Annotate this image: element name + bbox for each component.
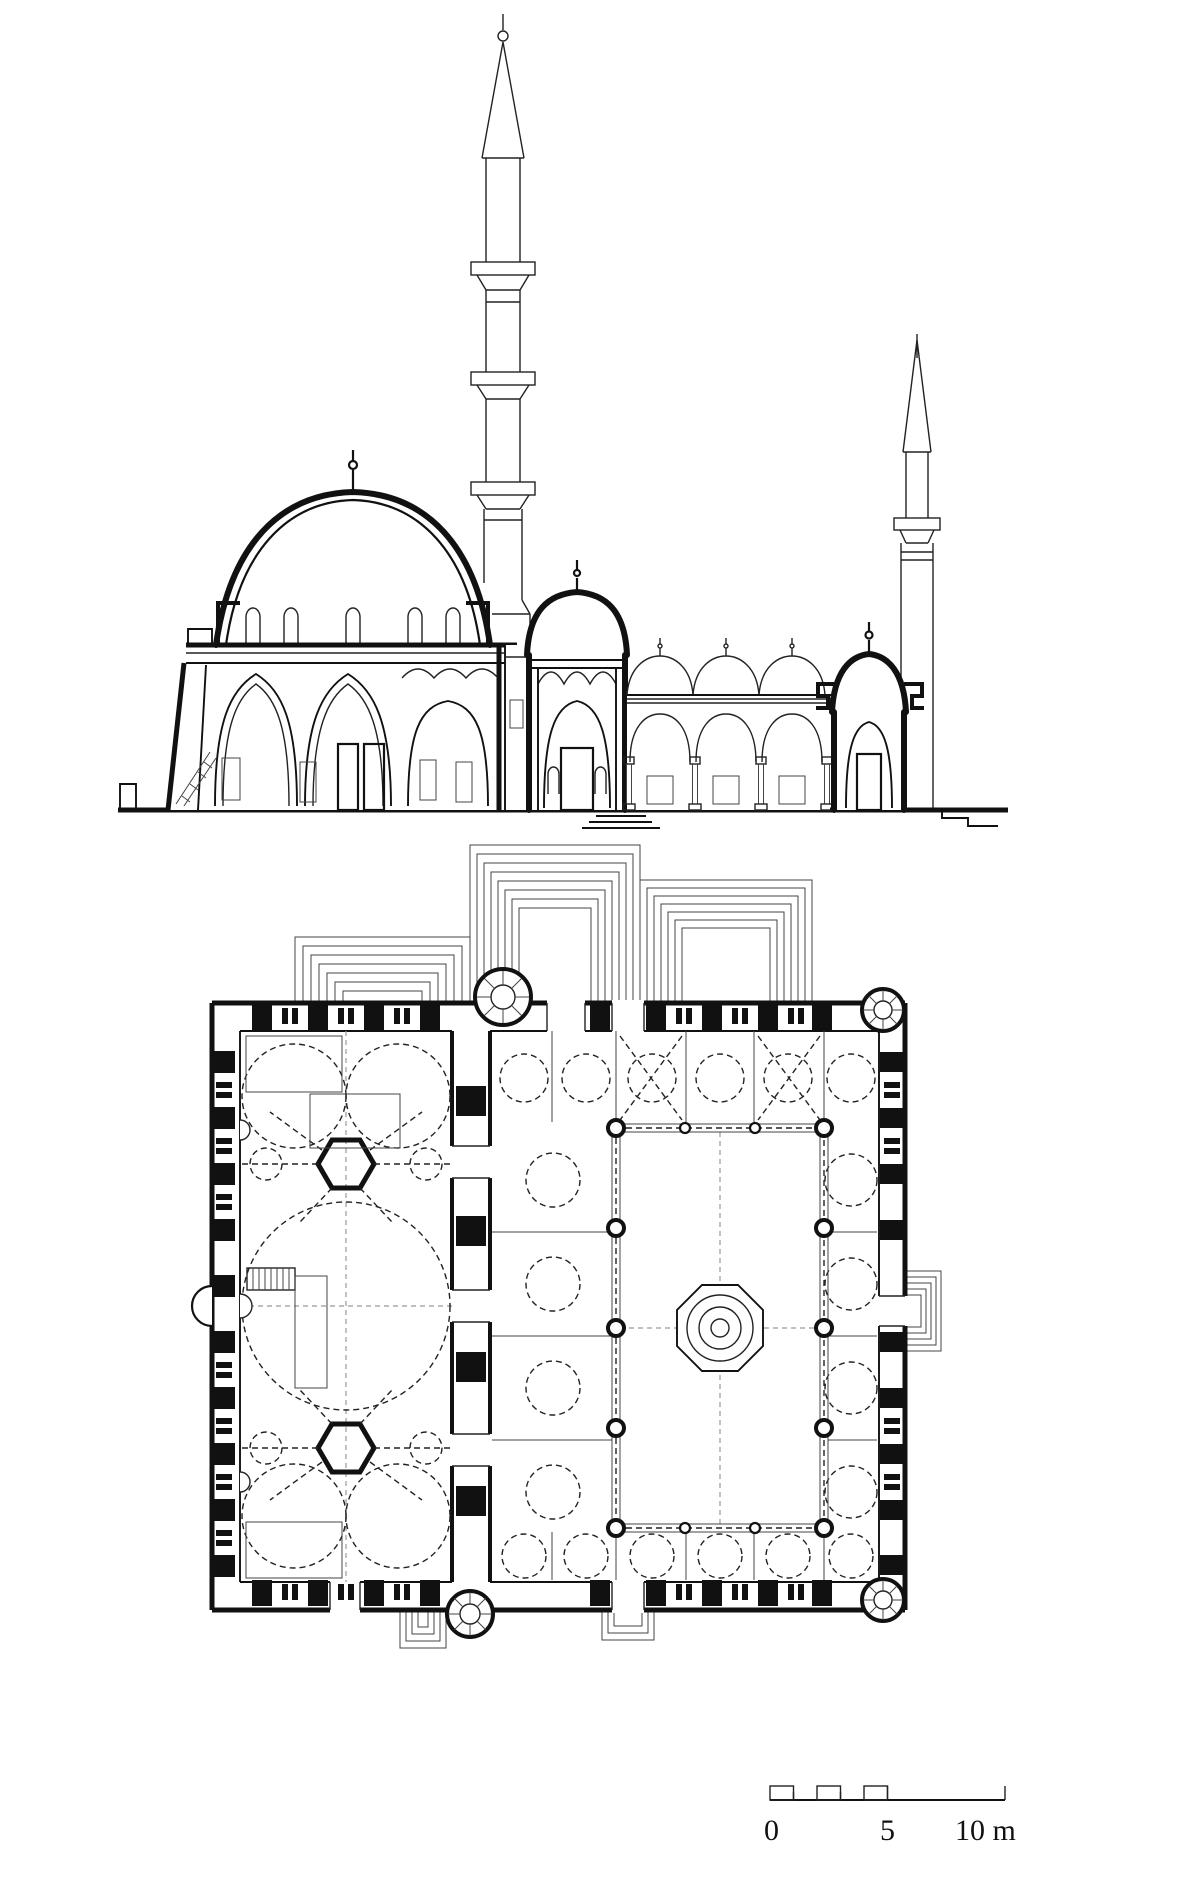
scale-bar: 0 5 10 m	[764, 1786, 1016, 1847]
column	[816, 1420, 832, 1436]
column	[608, 1320, 624, 1336]
architectural-drawing-sheet: 0 5 10 m	[0, 0, 1181, 1880]
arcade-dome	[693, 656, 759, 695]
column	[816, 1220, 832, 1236]
column	[608, 1420, 624, 1436]
column	[680, 1123, 690, 1133]
northwest-minaret-base	[475, 969, 531, 1025]
scale-label-0: 0	[764, 1814, 779, 1847]
courtyard-plan	[492, 1031, 877, 1580]
plan-view	[192, 845, 941, 1648]
column	[816, 1520, 832, 1536]
column	[680, 1523, 690, 1533]
scale-label-10m: 10 m	[955, 1814, 1016, 1847]
corner-dome-bay	[346, 1044, 450, 1148]
middle-wall	[448, 1031, 494, 1582]
ablution-fountain	[677, 1285, 763, 1371]
corner-dome-bay	[242, 1464, 346, 1568]
wall-turret	[188, 629, 212, 643]
middle-dome-unit	[527, 560, 627, 810]
column	[750, 1123, 760, 1133]
entrance-steps	[582, 816, 660, 828]
mihrab-niche	[240, 1294, 252, 1318]
portal-steps-northwest	[295, 937, 470, 1003]
column	[608, 1120, 624, 1136]
southeast-turret	[862, 1579, 904, 1621]
portal-steps-east	[905, 1271, 941, 1351]
portal-steps-northeast	[640, 880, 812, 1003]
dome-finials	[660, 638, 792, 656]
column	[816, 1320, 832, 1336]
column	[816, 1120, 832, 1136]
corner-dome-bay	[346, 1464, 450, 1568]
portal-steps-south	[400, 1610, 654, 1648]
scale-label-5: 5	[880, 1814, 895, 1847]
corner-dome-bay	[242, 1044, 346, 1148]
minbar	[247, 1268, 327, 1388]
drawing-canvas: 0 5 10 m	[0, 0, 1181, 1880]
column	[608, 1520, 624, 1536]
hexagonal-pier	[318, 1140, 374, 1188]
stair-turrets	[447, 969, 904, 1637]
column	[750, 1523, 760, 1533]
wall-column-pairs	[216, 1008, 900, 1600]
tall-minaret	[471, 14, 535, 645]
arcade-dome	[627, 656, 693, 695]
wall-niche	[240, 1120, 250, 1140]
prayer-hall-section	[168, 450, 517, 810]
northeast-turret	[862, 989, 904, 1031]
column	[608, 1220, 624, 1236]
arcade-dome	[759, 656, 825, 695]
passage-section	[505, 645, 529, 810]
wall-niche	[240, 1472, 250, 1492]
section-view	[118, 14, 1008, 828]
mihrab-projection	[192, 1286, 212, 1326]
right-dome-unit	[816, 622, 924, 810]
southwest-minaret-base	[447, 1591, 493, 1637]
gallery	[246, 1522, 342, 1578]
